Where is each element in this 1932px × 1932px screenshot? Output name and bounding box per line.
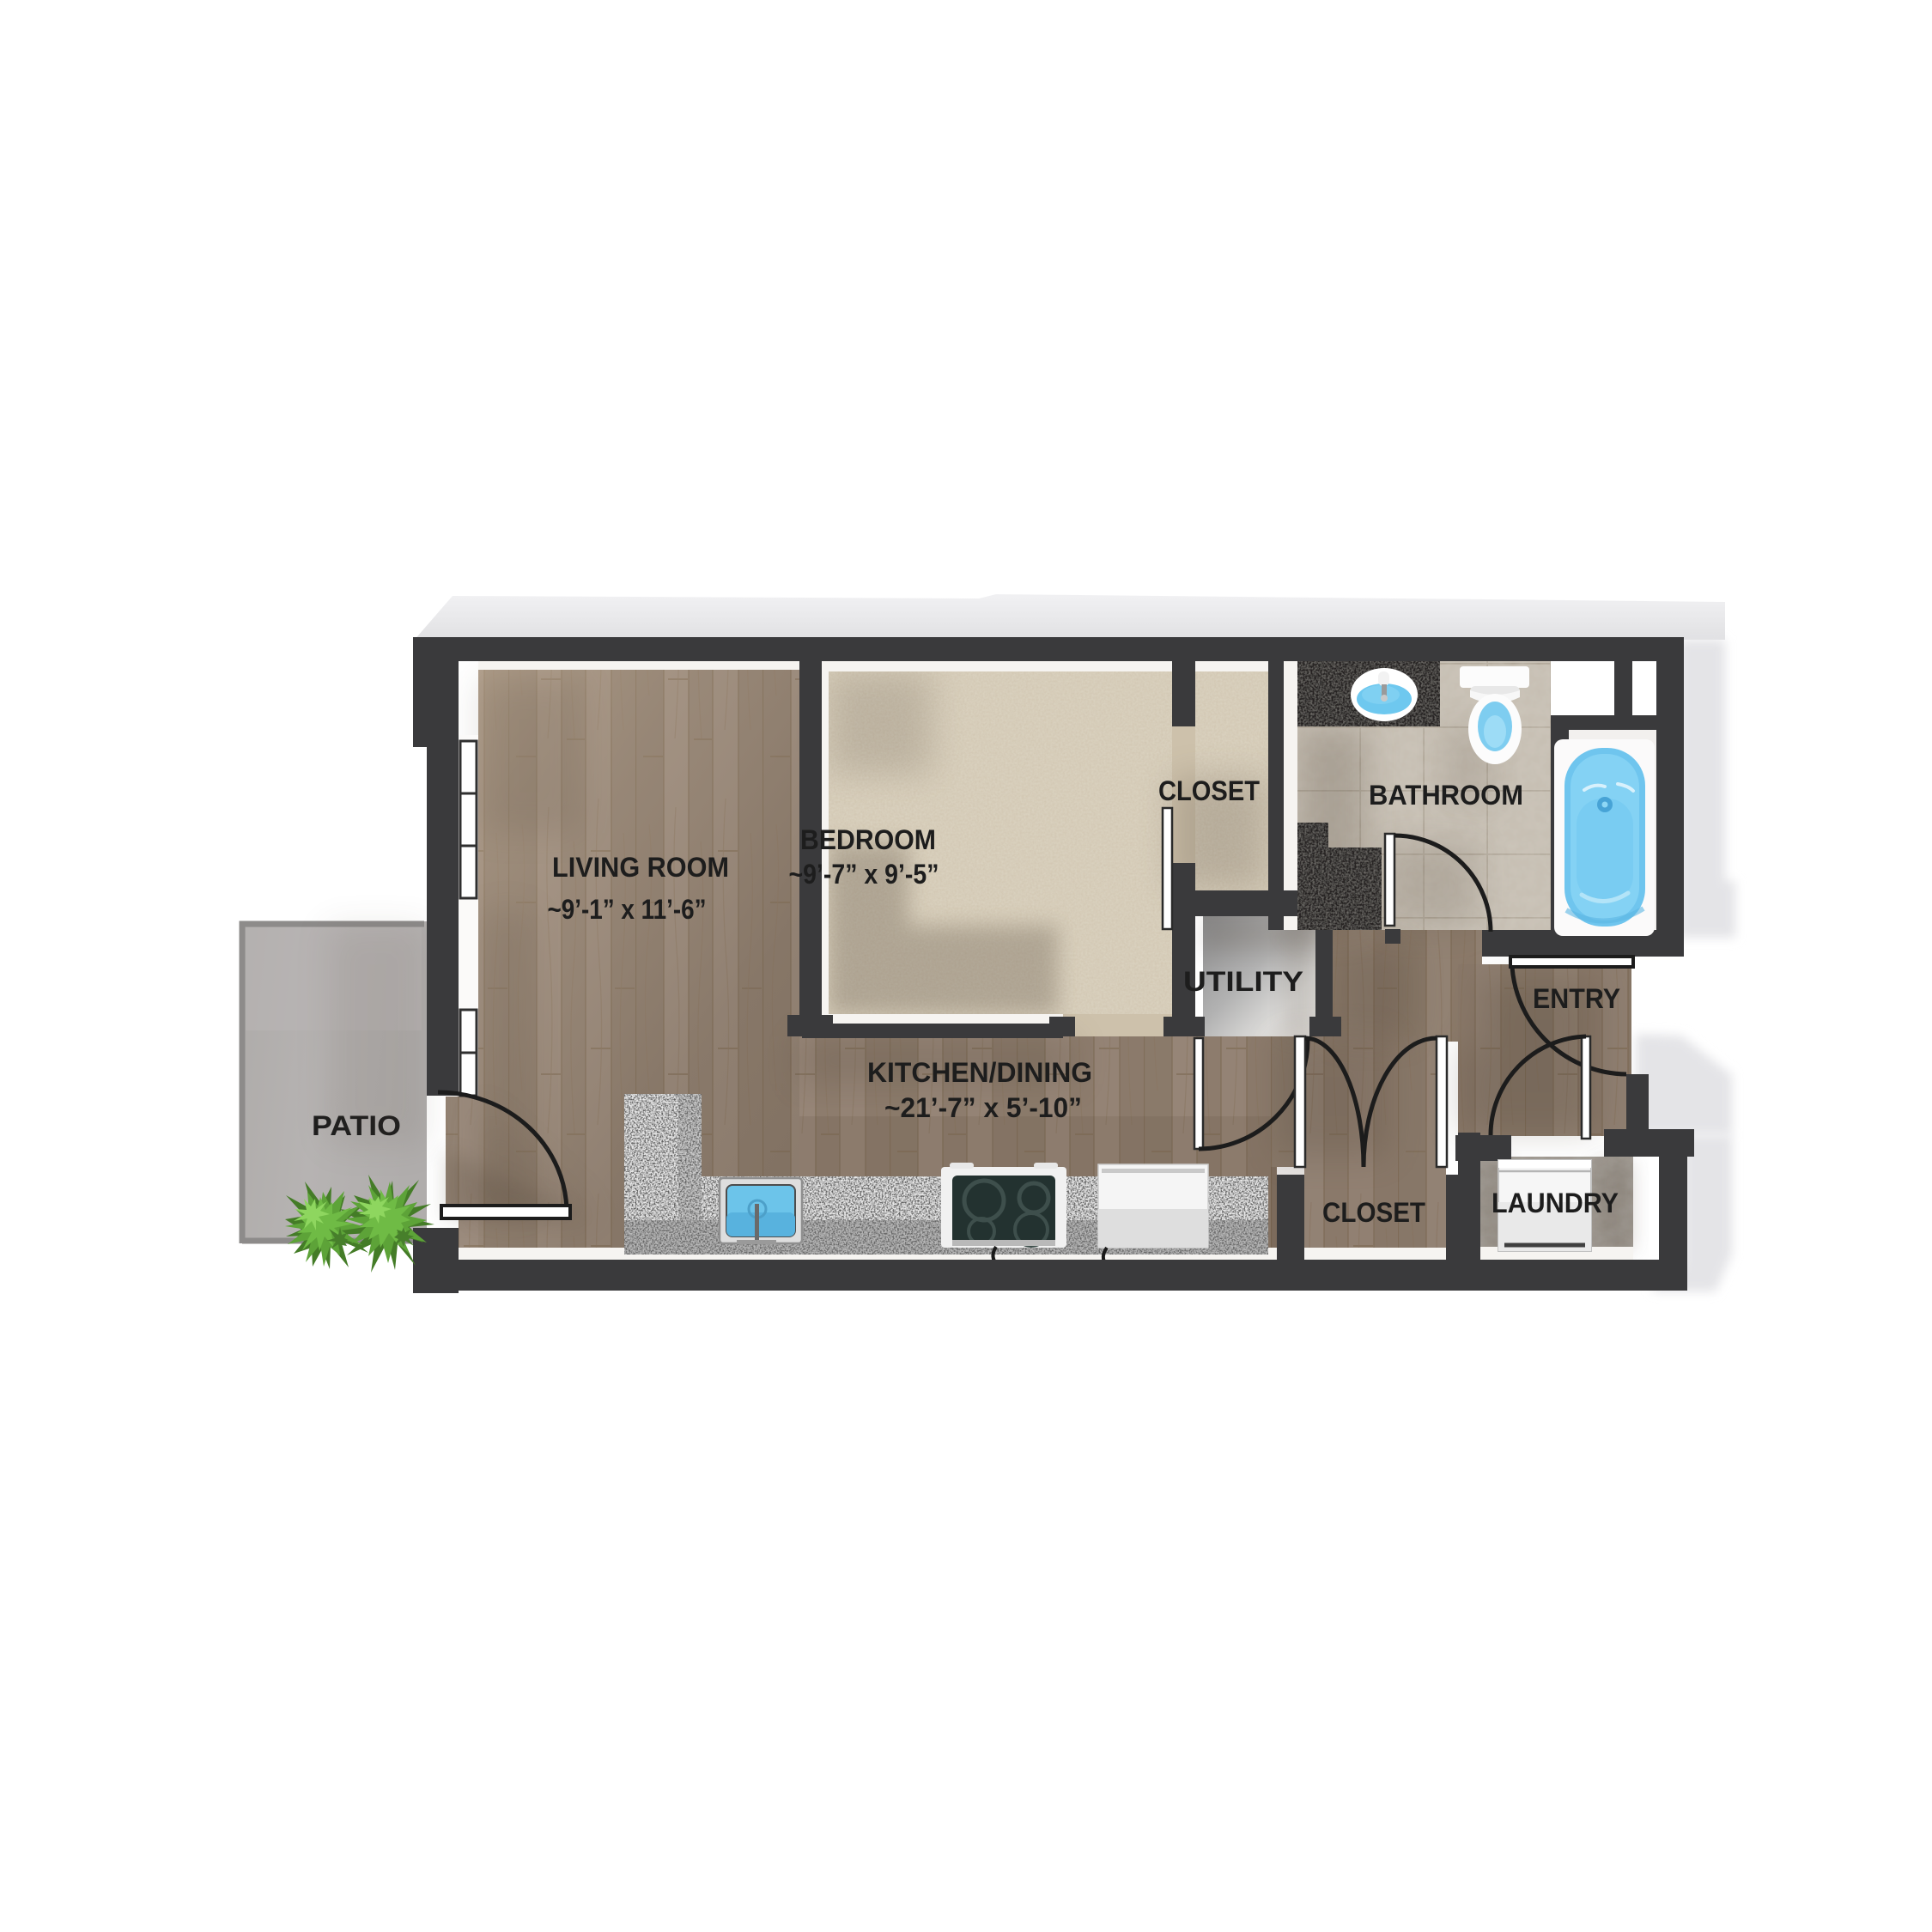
svg-text:BEDROOM: BEDROOM — [800, 824, 936, 855]
svg-text:~9’-7” x 9’-5”: ~9’-7” x 9’-5” — [789, 859, 939, 890]
svg-text:UTILITY: UTILITY — [1183, 966, 1303, 997]
svg-text:KITCHEN/DINING: KITCHEN/DINING — [867, 1057, 1092, 1088]
svg-text:LAUNDRY: LAUNDRY — [1492, 1188, 1619, 1218]
svg-text:~9’-1” x 11’-6”: ~9’-1” x 11’-6” — [548, 894, 707, 925]
svg-text:ENTRY: ENTRY — [1533, 983, 1620, 1014]
svg-text:CLOSET: CLOSET — [1322, 1197, 1425, 1228]
svg-text:BATHROOM: BATHROOM — [1369, 780, 1523, 811]
svg-text:LIVING ROOM: LIVING ROOM — [552, 852, 729, 883]
svg-text:CLOSET: CLOSET — [1158, 775, 1260, 806]
svg-text:~21’-7” x 5’-10”: ~21’-7” x 5’-10” — [884, 1092, 1082, 1123]
